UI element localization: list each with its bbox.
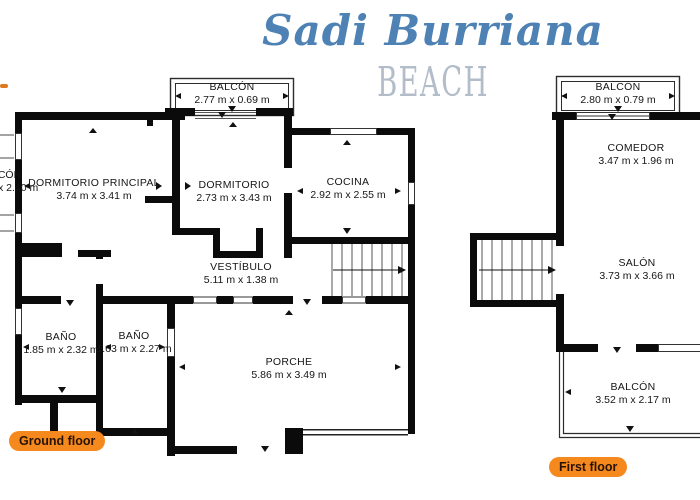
room-label-porche: PORCHE 5.86 m x 3.49 m: [251, 356, 326, 381]
room-dims: 1.63 m x 2.27 m: [96, 343, 171, 356]
room-name: DORMITORIO: [196, 179, 271, 192]
brand-subtitle: BEACH: [377, 58, 489, 106]
room-name: SALÓN: [599, 257, 674, 270]
floor-plan-image: Sadi Burriana BEACH BALCÓN 2.77 m x 0.69…: [0, 0, 700, 500]
room-label-dormitorio-principal: DORMITORIO PRINCIPAL 3.74 m x 3.41 m: [28, 177, 160, 202]
room-name: BALCÓN: [580, 81, 655, 94]
room-dims: 3.73 m x 3.66 m: [599, 270, 674, 283]
room-name: BALCÓN: [194, 81, 269, 94]
room-label-balcon-top-first: BALCÓN 2.80 m x 0.79 m: [580, 81, 655, 106]
room-dims: 3.74 m x 3.41 m: [28, 190, 160, 203]
left-edge-orange-mark: [0, 84, 8, 88]
room-label-bano-2: BAÑO 1.63 m x 2.27 m: [96, 330, 171, 355]
room-label-balcon-top-ground: BALCÓN 2.77 m x 0.69 m: [194, 81, 269, 106]
room-label-bano-1: BAÑO 1.85 m x 2.32 m: [23, 331, 98, 356]
room-name: DORMITORIO PRINCIPAL: [28, 177, 160, 190]
room-dims: 2.92 m x 2.55 m: [310, 189, 385, 202]
first-floor-badge: First floor: [549, 457, 627, 477]
room-name: VESTÍBULO: [204, 261, 279, 274]
room-label-balcon-bottom-first: BALCÓN 3.52 m x 2.17 m: [595, 381, 670, 406]
room-dims: 2.73 m x 3.43 m: [196, 192, 271, 205]
room-dims: 3.52 m x 2.17 m: [595, 394, 670, 407]
room-name: PORCHE: [251, 356, 326, 369]
room-name: BALCÓN: [595, 381, 670, 394]
room-dims: 2.77 m x 0.69 m: [194, 94, 269, 107]
room-dims: 2.80 m x 0.79 m: [580, 94, 655, 107]
room-name: BAÑO: [96, 330, 171, 343]
room-dims: 5.86 m x 3.49 m: [251, 369, 326, 382]
room-label-vestibulo: VESTÍBULO 5.11 m x 1.38 m: [204, 261, 279, 286]
porch-railing: [303, 430, 408, 435]
room-dims: 1.85 m x 2.32 m: [23, 344, 98, 357]
first-staircase: [479, 240, 556, 300]
room-name: COMEDOR: [598, 142, 673, 155]
room-dims: 5.11 m x 1.38 m: [204, 274, 279, 287]
room-label-cocina: COCINA 2.92 m x 2.55 m: [310, 176, 385, 201]
room-dims: 3.47 m x 1.96 m: [598, 155, 673, 168]
brand-title: Sadi Burriana: [262, 6, 604, 55]
room-label-balcon-left-name: BALCÓN: [0, 169, 21, 181]
ground-staircase: [332, 244, 406, 296]
floor-plan-geometry: [0, 0, 700, 500]
room-name: COCINA: [310, 176, 385, 189]
room-label-dormitorio: DORMITORIO 2.73 m x 3.43 m: [196, 179, 271, 204]
room-name: BAÑO: [23, 331, 98, 344]
ground-floor-badge: Ground floor: [9, 431, 105, 451]
room-label-salon: SALÓN 3.73 m x 3.66 m: [599, 257, 674, 282]
tick-marks: [23, 93, 675, 452]
room-label-comedor: COMEDOR 3.47 m x 1.96 m: [598, 142, 673, 167]
